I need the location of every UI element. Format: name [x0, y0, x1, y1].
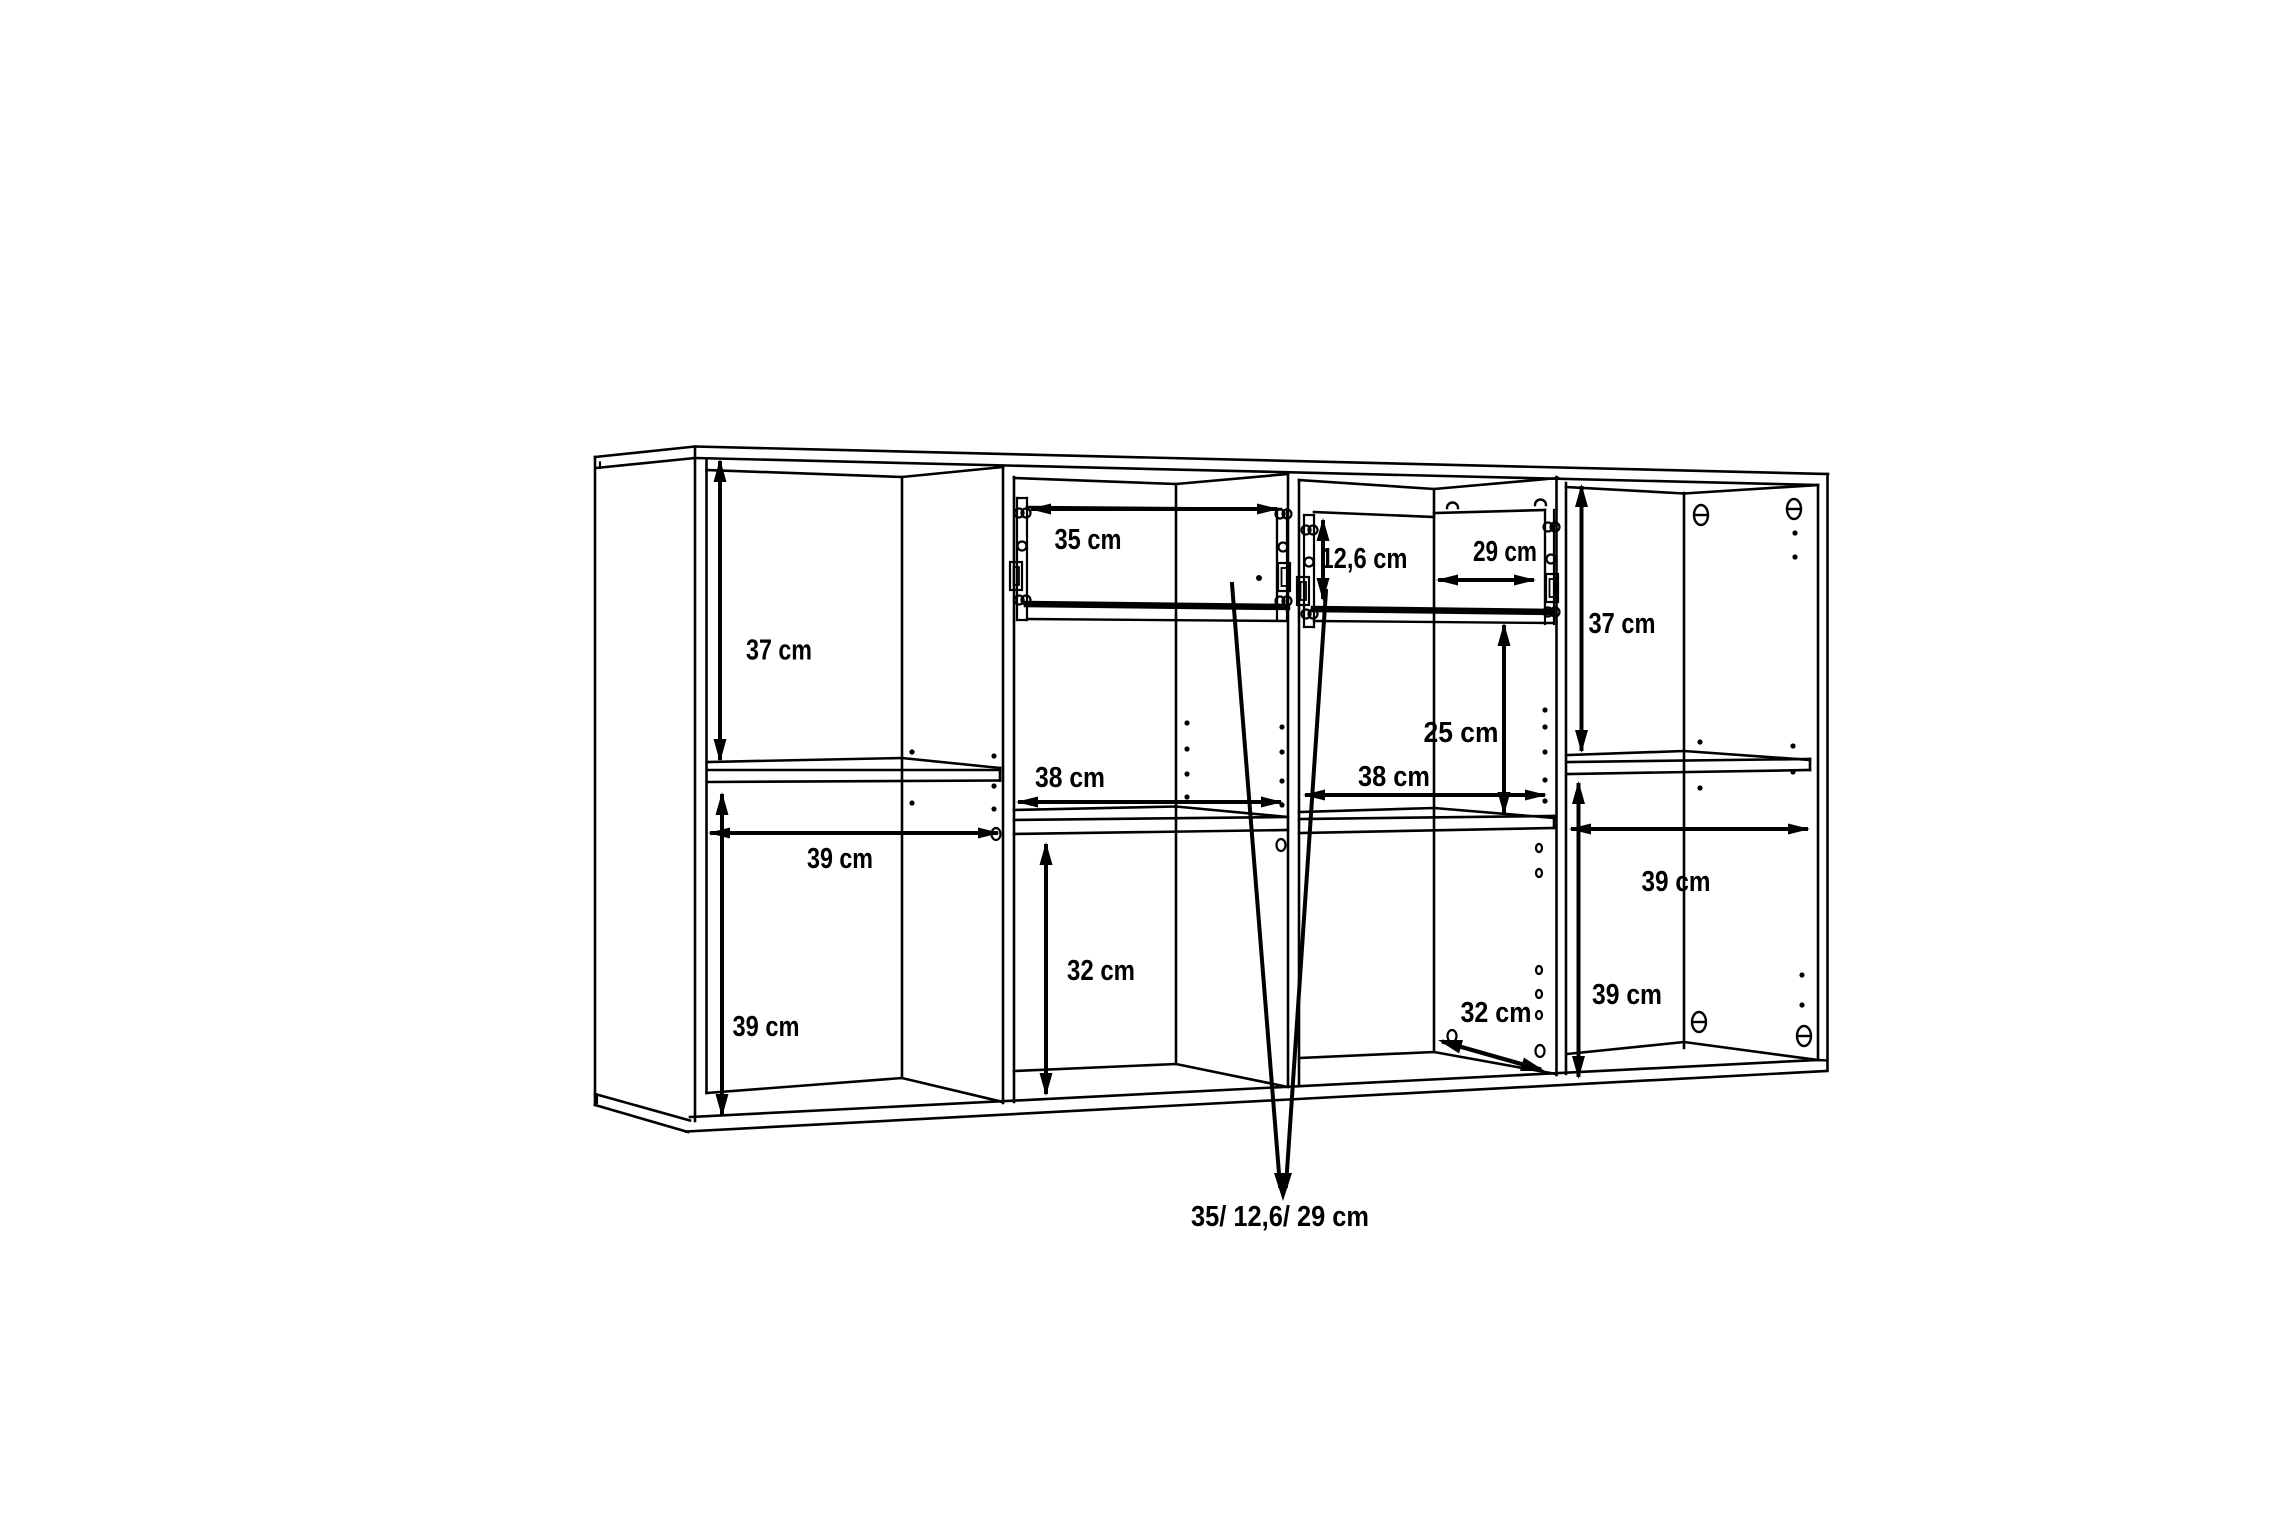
svg-text:38 cm: 38 cm	[1358, 761, 1430, 793]
svg-text:38 cm: 38 cm	[1035, 762, 1105, 794]
svg-text:35/ 12,6/ 29 cm: 35/ 12,6/ 29 cm	[1191, 1201, 1369, 1233]
svg-text:37 cm: 37 cm	[746, 635, 812, 667]
svg-text:37 cm: 37 cm	[1589, 608, 1656, 640]
svg-text:32 cm: 32 cm	[1461, 997, 1532, 1029]
svg-text:12,6 cm: 12,6 cm	[1321, 543, 1408, 575]
svg-text:39 cm: 39 cm	[1642, 866, 1711, 898]
svg-text:29 cm: 29 cm	[1473, 536, 1537, 568]
svg-text:32 cm: 32 cm	[1067, 955, 1135, 987]
svg-text:25 cm: 25 cm	[1424, 717, 1499, 749]
svg-text:35 cm: 35 cm	[1055, 524, 1122, 556]
svg-text:39 cm: 39 cm	[807, 843, 873, 875]
svg-text:39 cm: 39 cm	[1592, 979, 1662, 1011]
svg-text:39 cm: 39 cm	[733, 1011, 800, 1043]
